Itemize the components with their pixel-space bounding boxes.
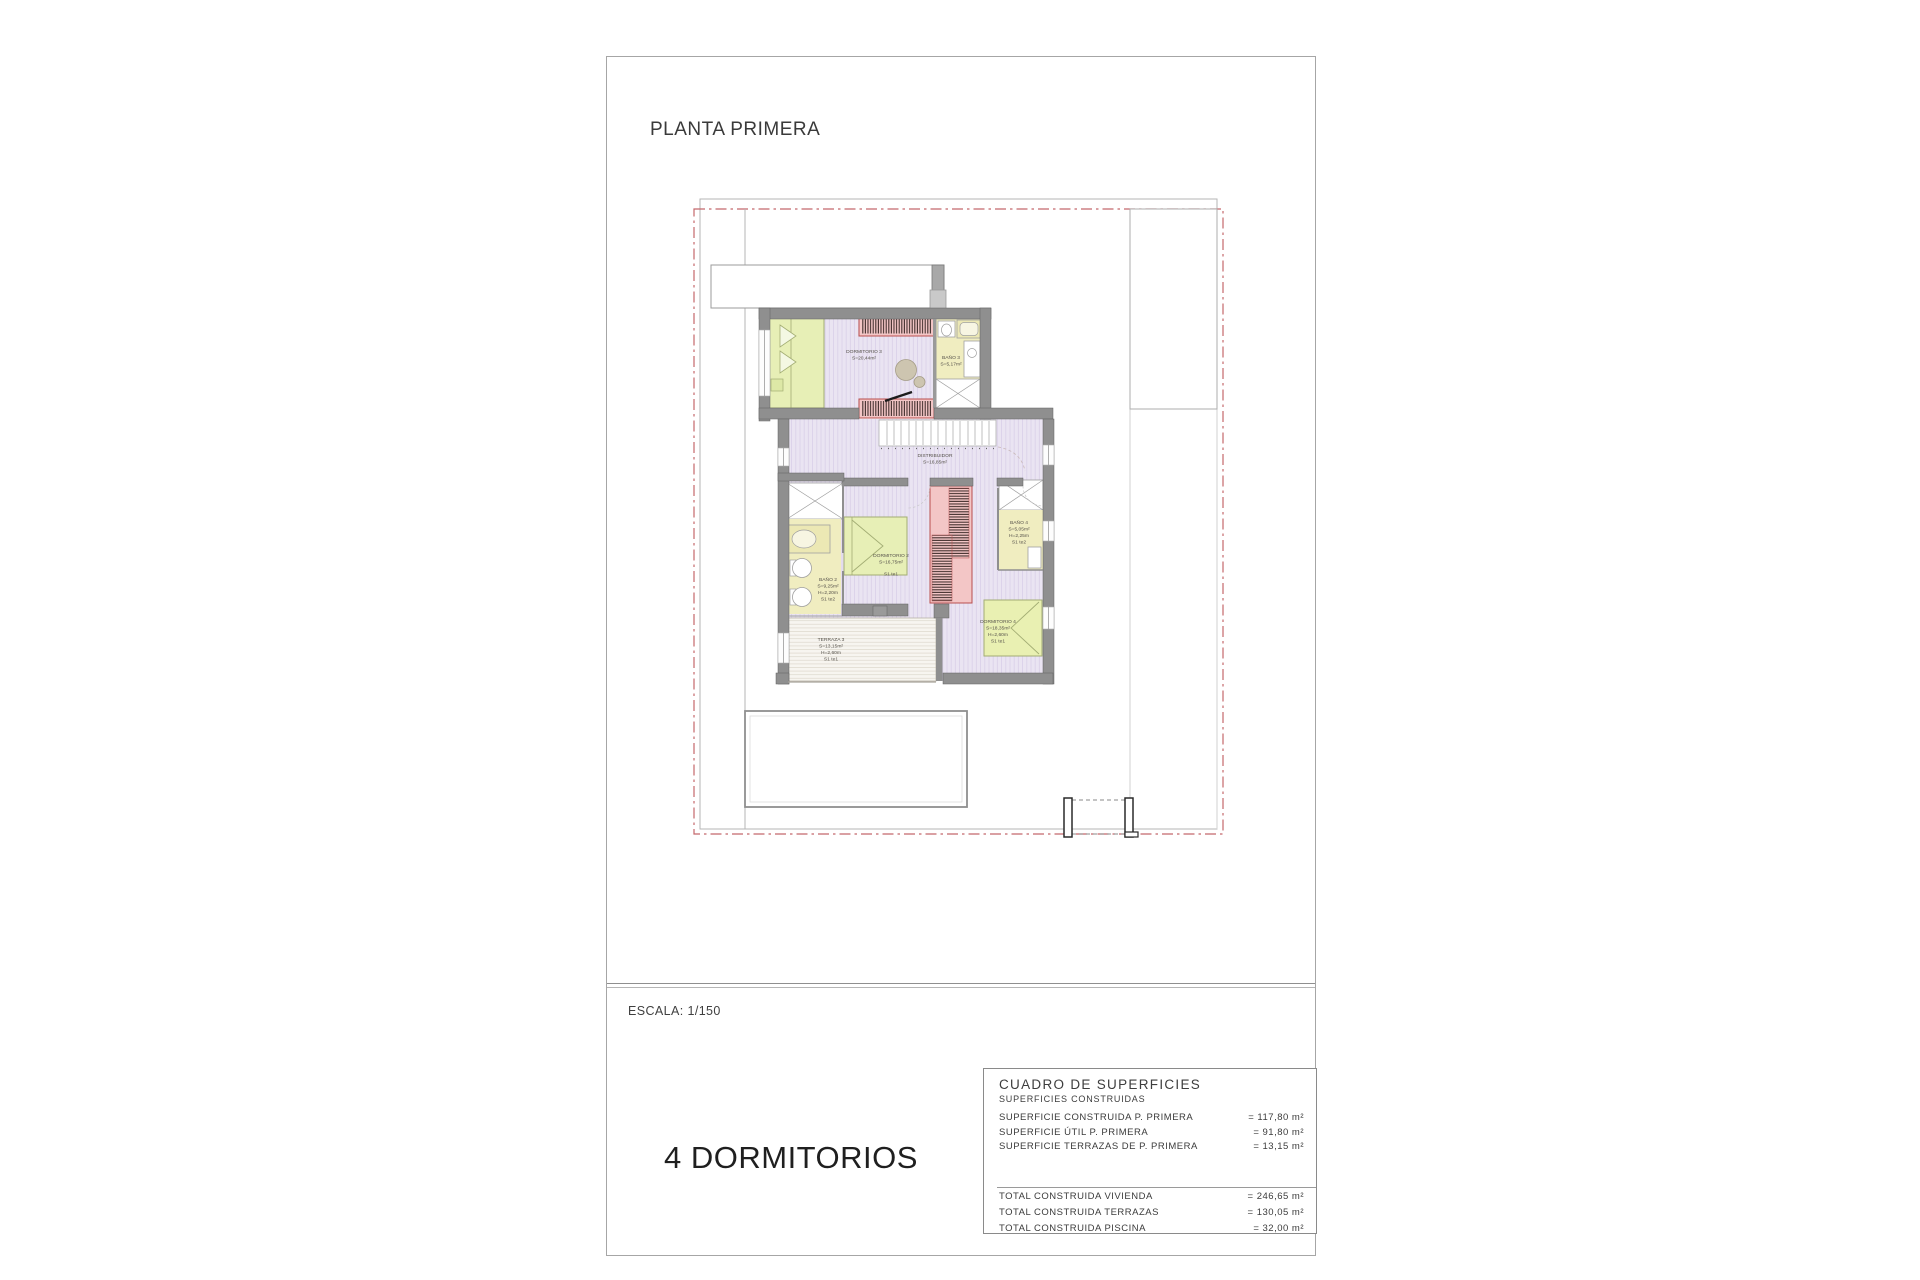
svg-text:S=5,17m²: S=5,17m²: [940, 362, 962, 368]
dormitorio2-label: DORMITORIO 2: [873, 553, 909, 559]
page-title: PLANTA PRIMERA: [650, 119, 820, 141]
distribuidor-label: DISTRIBUIDOR: [917, 453, 953, 459]
bedrooms-label: 4 DORMITORIOS: [664, 1140, 918, 1176]
totals-rows: TOTAL CONSTRUIDA VIVIENDA = 246,65 m² TO…: [999, 1191, 1304, 1239]
pool: [745, 711, 967, 807]
svg-text:S1 te2: S1 te2: [1012, 540, 1026, 546]
table-row: SUPERFICIE CONSTRUIDA P. PRIMERA = 117,8…: [999, 1112, 1304, 1127]
bano3-label: BAÑO 3: [942, 354, 960, 361]
dormitorio2-bed: [844, 517, 907, 575]
surfaces-table-title: CUADRO DE SUPERFICIES: [999, 1077, 1201, 1092]
table-row: TOTAL CONSTRUIDA PISCINA = 32,00 m²: [999, 1223, 1304, 1239]
svg-text:S=13,15m²: S=13,15m²: [819, 644, 843, 650]
hall-closet: [930, 486, 972, 603]
svg-text:S=18,35m²: S=18,35m²: [986, 626, 1010, 632]
svg-text:H=2,25m: H=2,25m: [1009, 533, 1029, 539]
bano4-label: BAÑO 4: [1010, 519, 1028, 526]
scale-label: ESCALA: 1/150: [628, 1004, 721, 1018]
svg-text:S=20,44m²: S=20,44m²: [852, 356, 876, 362]
bano2-label: BAÑO 2: [819, 576, 837, 583]
dormitorio4-label: DORMITORIO 4: [980, 619, 1016, 625]
svg-text:H=2,20m: H=2,20m: [818, 590, 838, 596]
svg-text:S1 te1: S1 te1: [991, 639, 1005, 645]
gate-post-right: [1125, 798, 1133, 837]
dormitorio3-label: DORMITORIO 3: [846, 349, 882, 355]
svg-text:S1 te1: S1 te1: [884, 572, 898, 578]
gate-post-left: [1064, 798, 1072, 837]
surfaces-rows: SUPERFICIE CONSTRUIDA P. PRIMERA = 117,8…: [999, 1112, 1304, 1156]
svg-text:S1 te1: S1 te1: [824, 657, 838, 663]
table-row: TOTAL CONSTRUIDA TERRAZAS = 130,05 m²: [999, 1207, 1304, 1223]
table-row: TOTAL CONSTRUIDA VIVIENDA = 246,65 m²: [999, 1191, 1304, 1207]
chimney-column: [930, 290, 946, 310]
svg-text:S=16,75m²: S=16,75m²: [879, 560, 903, 566]
surfaces-table: CUADRO DE SUPERFICIES SUPERFICIES CONSTR…: [983, 1068, 1317, 1234]
svg-text:S=16,85m²: S=16,85m²: [923, 460, 947, 466]
terraza3-label: TERRAZA 3: [818, 637, 845, 643]
svg-text:H=2,60m: H=2,60m: [988, 632, 1008, 638]
terraza3-floor: [788, 618, 936, 681]
svg-text:S=9,25m²: S=9,25m²: [817, 584, 839, 590]
svg-text:S=5,05m²: S=5,05m²: [1008, 527, 1030, 533]
totals-separator: [997, 1187, 1316, 1188]
title-block-divider: [607, 983, 1315, 988]
svg-text:H=2,60m: H=2,60m: [821, 650, 841, 656]
side-strip-box: [1130, 209, 1217, 409]
table-row: SUPERFICIE ÚTIL P. PRIMERA = 91,80 m²: [999, 1127, 1304, 1142]
floor-plan: DORMITORIO 3 S=20,44m² BAÑO 3 S=5,17m² D…: [686, 196, 1231, 841]
wardrobe-bottom: [859, 399, 934, 418]
drawing-sheet: PLANTA PRIMERA: [606, 56, 1316, 1256]
surfaces-table-subtitle: SUPERFICIES CONSTRUIDAS: [999, 1094, 1145, 1104]
svg-text:S1 te2: S1 te2: [821, 597, 835, 603]
dormitorio3-bed: [767, 318, 824, 408]
table-row: SUPERFICIE TERRAZAS DE P. PRIMERA = 13,1…: [999, 1141, 1304, 1156]
roof-overhang: [711, 265, 946, 310]
